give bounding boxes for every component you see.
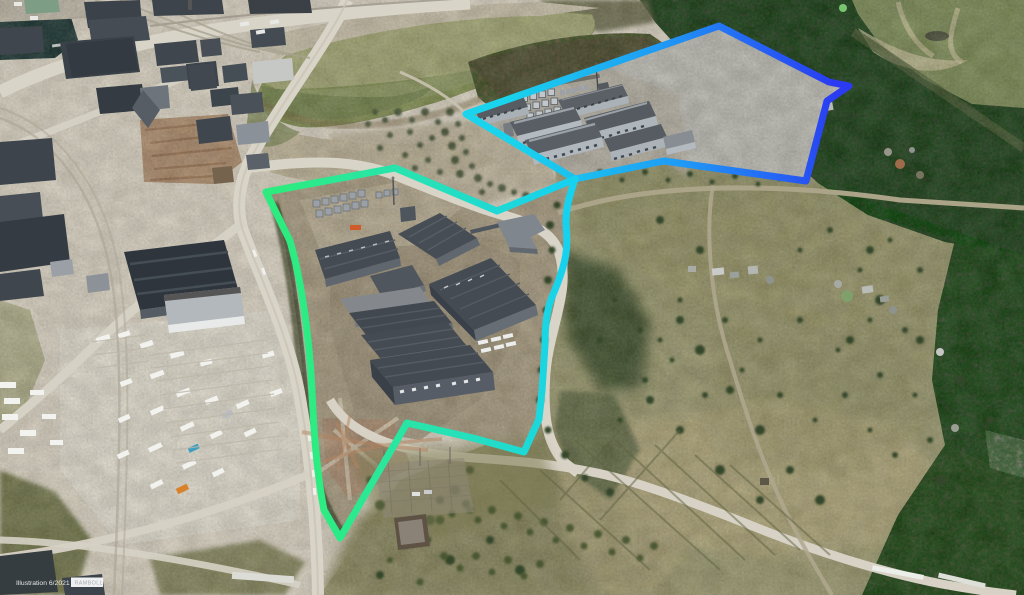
svg-text:RAMBOLL: RAMBOLL: [75, 581, 104, 587]
svg-text:Illustration 6/2021: Illustration 6/2021: [16, 580, 70, 587]
